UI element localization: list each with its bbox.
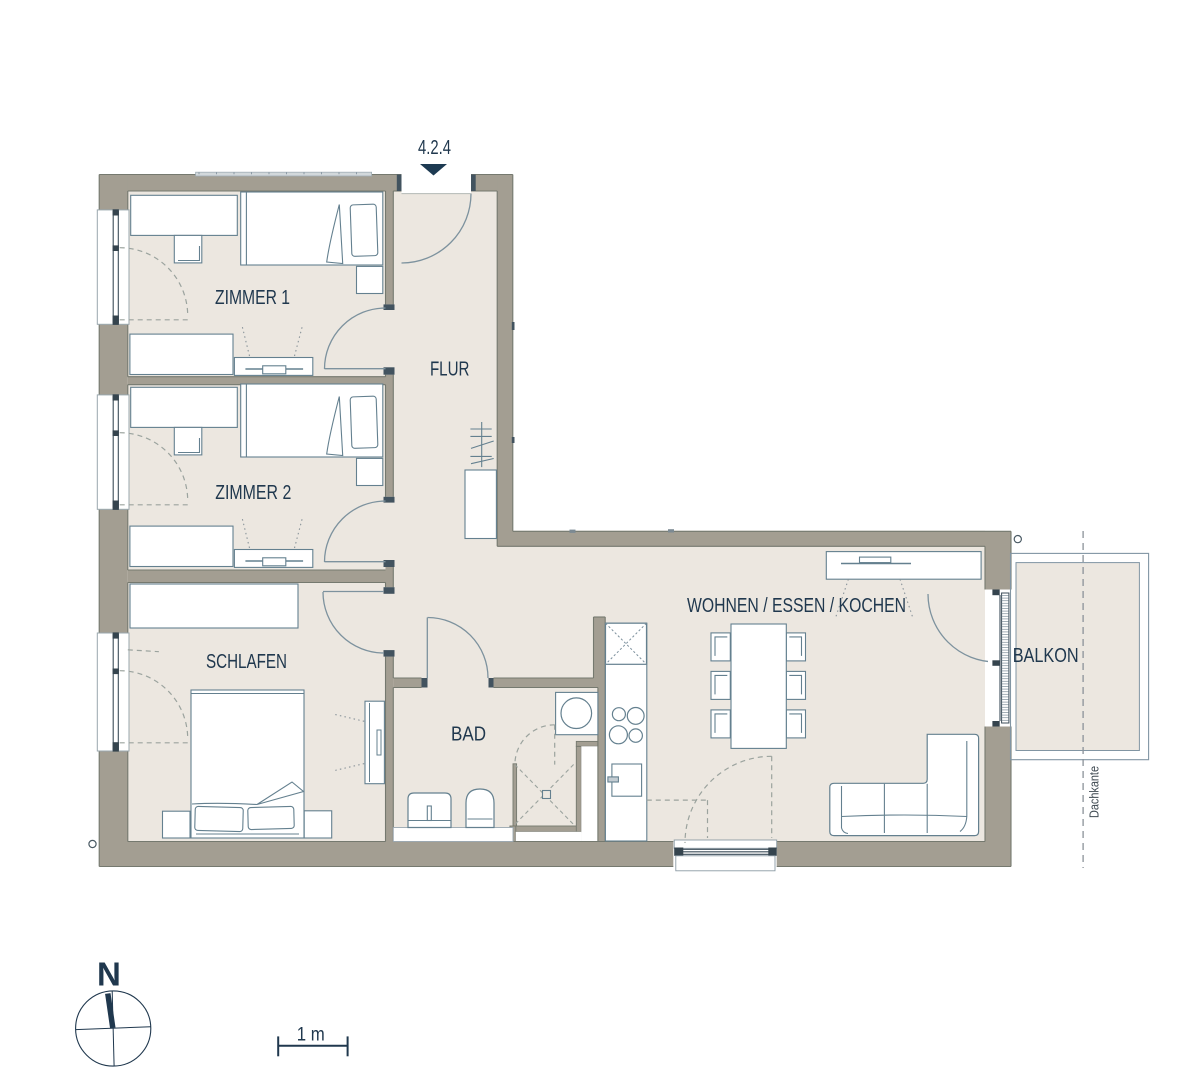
svg-text:SCHLAFEN: SCHLAFEN (206, 651, 287, 673)
svg-text:1 m: 1 m (297, 1025, 325, 1046)
svg-text:ZIMMER 1: ZIMMER 1 (215, 287, 290, 309)
svg-text:4.2.4: 4.2.4 (418, 137, 451, 159)
svg-text:BAD: BAD (451, 724, 486, 746)
svg-text:N: N (97, 955, 121, 992)
svg-text:WOHNEN / ESSEN / KOCHEN: WOHNEN / ESSEN / KOCHEN (687, 595, 906, 617)
svg-text:FLUR: FLUR (430, 358, 470, 380)
svg-text:BALKON: BALKON (1013, 645, 1079, 667)
svg-text:ZIMMER 2: ZIMMER 2 (215, 482, 291, 504)
svg-text:Dachkante: Dachkante (1087, 766, 1102, 818)
